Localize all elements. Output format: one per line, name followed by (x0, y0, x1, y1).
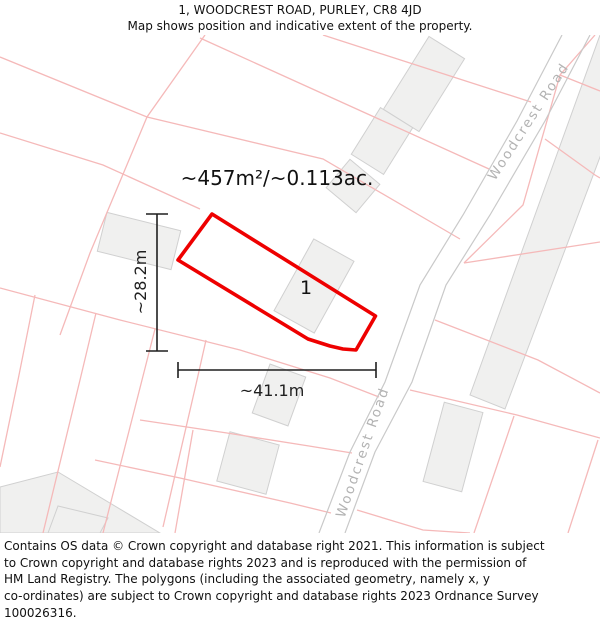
property-map-page: 1, WOODCREST ROAD, PURLEY, CR8 4JD Map s… (0, 0, 600, 625)
page-title: 1, WOODCREST ROAD, PURLEY, CR8 4JD (0, 3, 600, 19)
footer-line: 100026316. (4, 605, 598, 622)
building (423, 402, 483, 492)
copyright-footer: Contains OS data © Crown copyright and d… (4, 538, 598, 622)
map-header: 1, WOODCREST ROAD, PURLEY, CR8 4JD Map s… (0, 0, 600, 34)
footer-line: co-ordinates) are subject to Crown copyr… (4, 588, 598, 605)
building-plot-1 (274, 239, 354, 333)
plot-number-label: 1 (300, 277, 312, 299)
footer-line: to Crown copyright and database rights 2… (4, 555, 598, 572)
width-dimension-label: ~41.1m (240, 381, 305, 400)
road-name-label-lower: Woodcrest Road (333, 385, 393, 520)
footer-line: HM Land Registry. The polygons (includin… (4, 571, 598, 588)
property-plot-outline (178, 214, 376, 350)
building (217, 432, 279, 494)
area-label: ~457m²/~0.113ac. (181, 166, 374, 190)
map-canvas: Woodcrest Road Woodcrest Road 1 ~457m²/~… (0, 35, 600, 533)
height-dimension-label: ~28.2m (131, 250, 150, 315)
footer-line: Contains OS data © Crown copyright and d… (4, 538, 598, 555)
page-subtitle: Map shows position and indicative extent… (0, 19, 600, 35)
